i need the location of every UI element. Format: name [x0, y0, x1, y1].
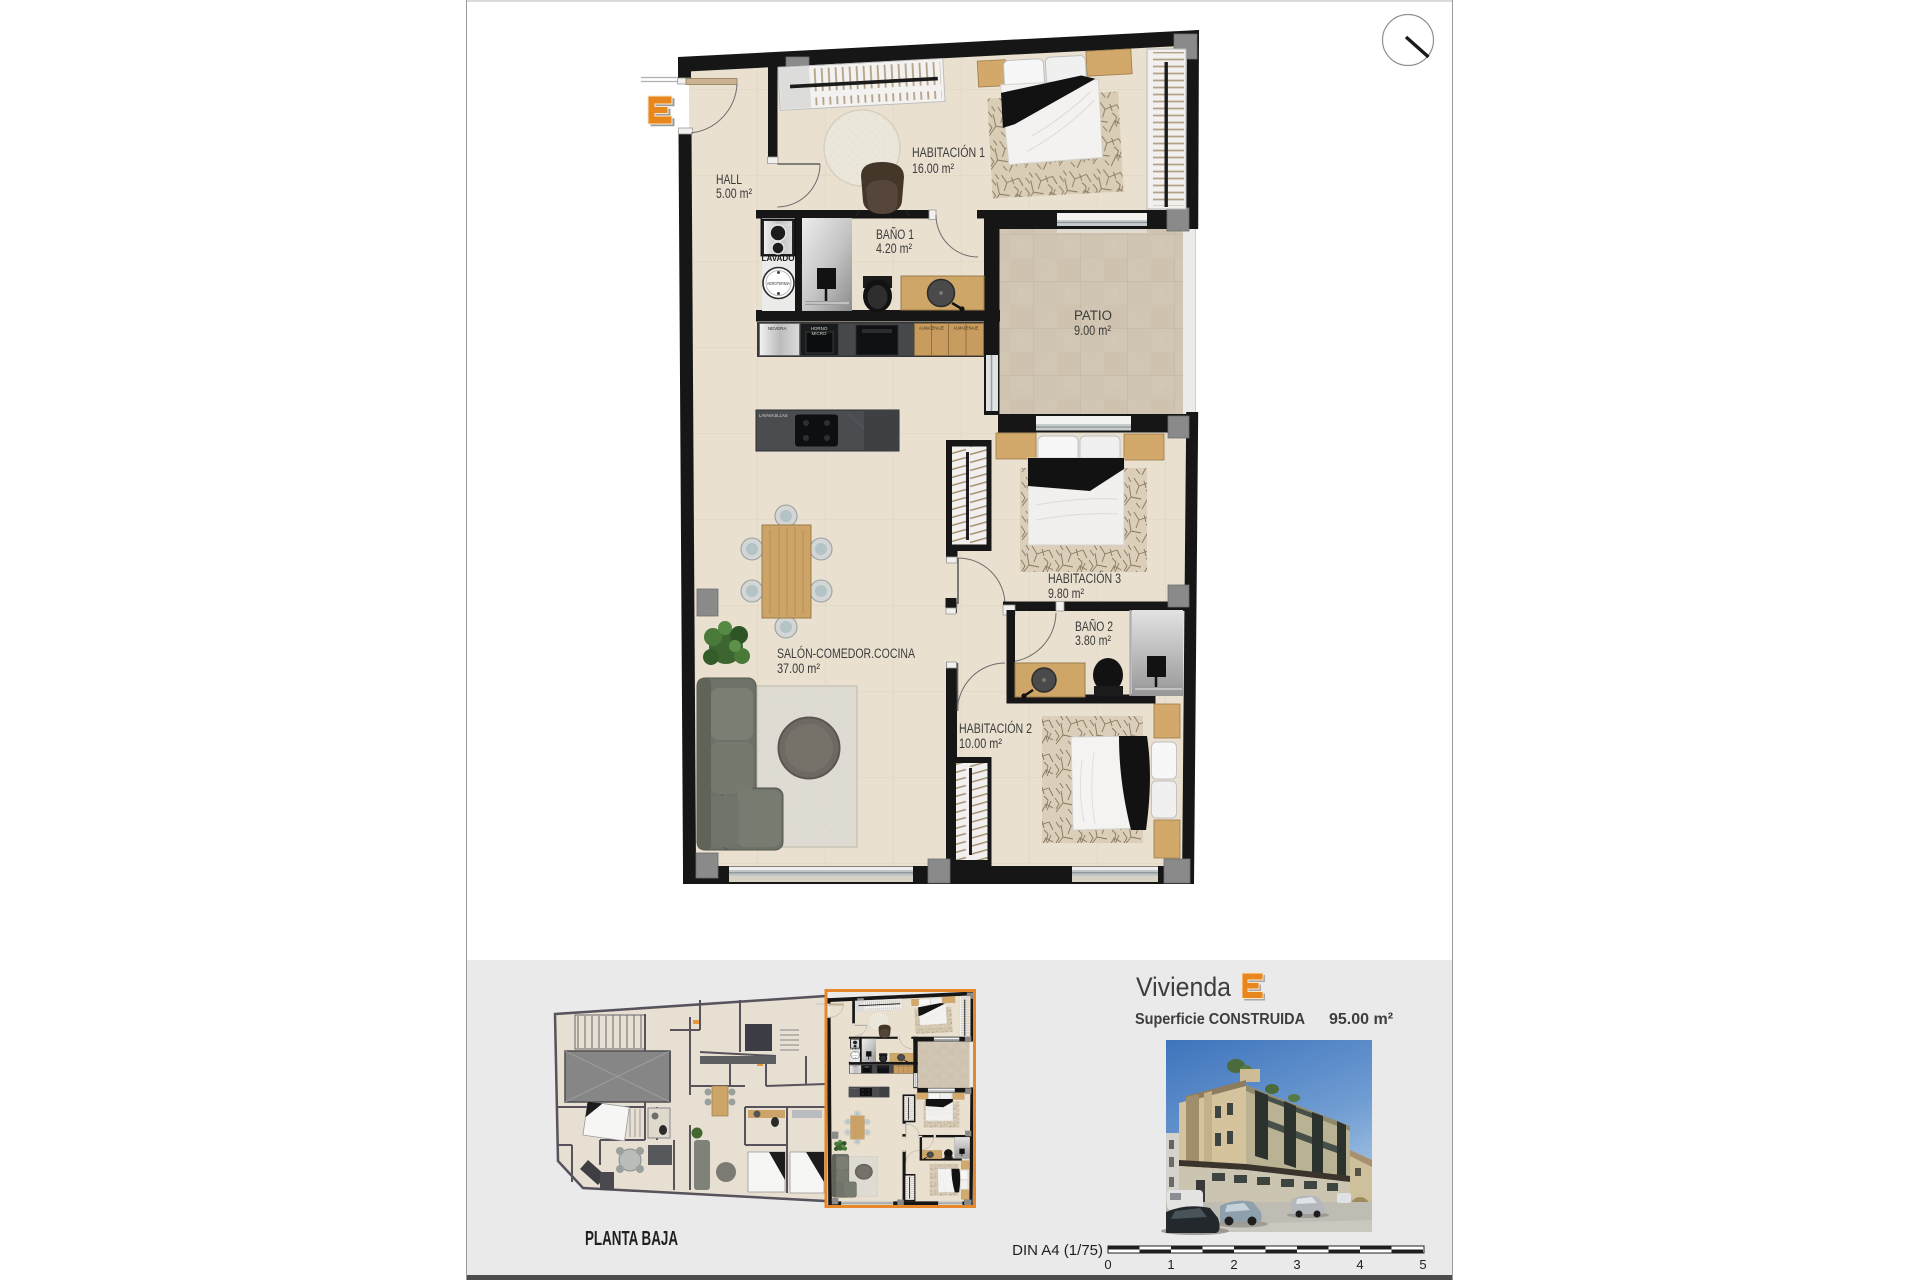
svg-text:PLANTA BAJA: PLANTA BAJA	[585, 1228, 678, 1250]
svg-text:3: 3	[1293, 1257, 1300, 1272]
svg-text:1: 1	[1167, 1257, 1174, 1272]
svg-text:Vivienda: Vivienda	[1136, 972, 1232, 1002]
svg-text:SALÓN-COMEDOR.COCINA: SALÓN-COMEDOR.COCINA	[777, 646, 915, 661]
svg-text:HABITACIÓN 1: HABITACIÓN 1	[912, 145, 985, 160]
svg-text:BAÑO 1: BAÑO 1	[876, 227, 914, 242]
svg-text:4.20 m²: 4.20 m²	[876, 241, 912, 256]
svg-text:0: 0	[1104, 1257, 1111, 1272]
svg-text:9.00 m²: 9.00 m²	[1074, 323, 1111, 338]
svg-text:2: 2	[1230, 1257, 1237, 1272]
svg-text:5.00 m²: 5.00 m²	[716, 186, 752, 201]
svg-text:5: 5	[1419, 1257, 1426, 1272]
svg-text:95.00 m²: 95.00 m²	[1329, 1011, 1393, 1028]
svg-text:ALMACENAJE: ALMACENAJE	[919, 326, 944, 331]
svg-text:3.80 m²: 3.80 m²	[1075, 633, 1111, 648]
svg-text:LAVADORA SECADORA: LAVADORA SECADORA	[764, 223, 792, 227]
svg-text:Superficie CONSTRUIDA: Superficie CONSTRUIDA	[1135, 1011, 1305, 1028]
svg-text:LAVAVAJILLAS: LAVAVAJILLAS	[759, 413, 788, 418]
svg-text:HALL: HALL	[716, 172, 742, 187]
svg-text:NEVERA: NEVERA	[768, 326, 787, 331]
svg-text:4: 4	[1356, 1257, 1363, 1272]
svg-text:9.80 m²: 9.80 m²	[1048, 586, 1084, 601]
svg-text:HABITACIÓN 2: HABITACIÓN 2	[959, 721, 1032, 736]
svg-text:HABITACIÓN 3: HABITACIÓN 3	[1048, 571, 1121, 586]
svg-text:37.00 m²: 37.00 m²	[777, 661, 820, 676]
svg-text:PATIO: PATIO	[1074, 308, 1112, 323]
svg-text:BAÑO 2: BAÑO 2	[1075, 619, 1113, 634]
svg-text:AEROTERMIA: AEROTERMIA	[767, 281, 790, 286]
svg-text:LAVADO: LAVADO	[762, 254, 795, 263]
svg-text:10.00 m²: 10.00 m²	[959, 736, 1002, 751]
svg-text:16.00 m²: 16.00 m²	[912, 161, 954, 176]
svg-text:MICRO: MICRO	[812, 331, 827, 336]
svg-text:ALMACENAJE: ALMACENAJE	[954, 326, 979, 331]
svg-text:DIN A4 (1/75): DIN A4 (1/75)	[1012, 1242, 1103, 1259]
